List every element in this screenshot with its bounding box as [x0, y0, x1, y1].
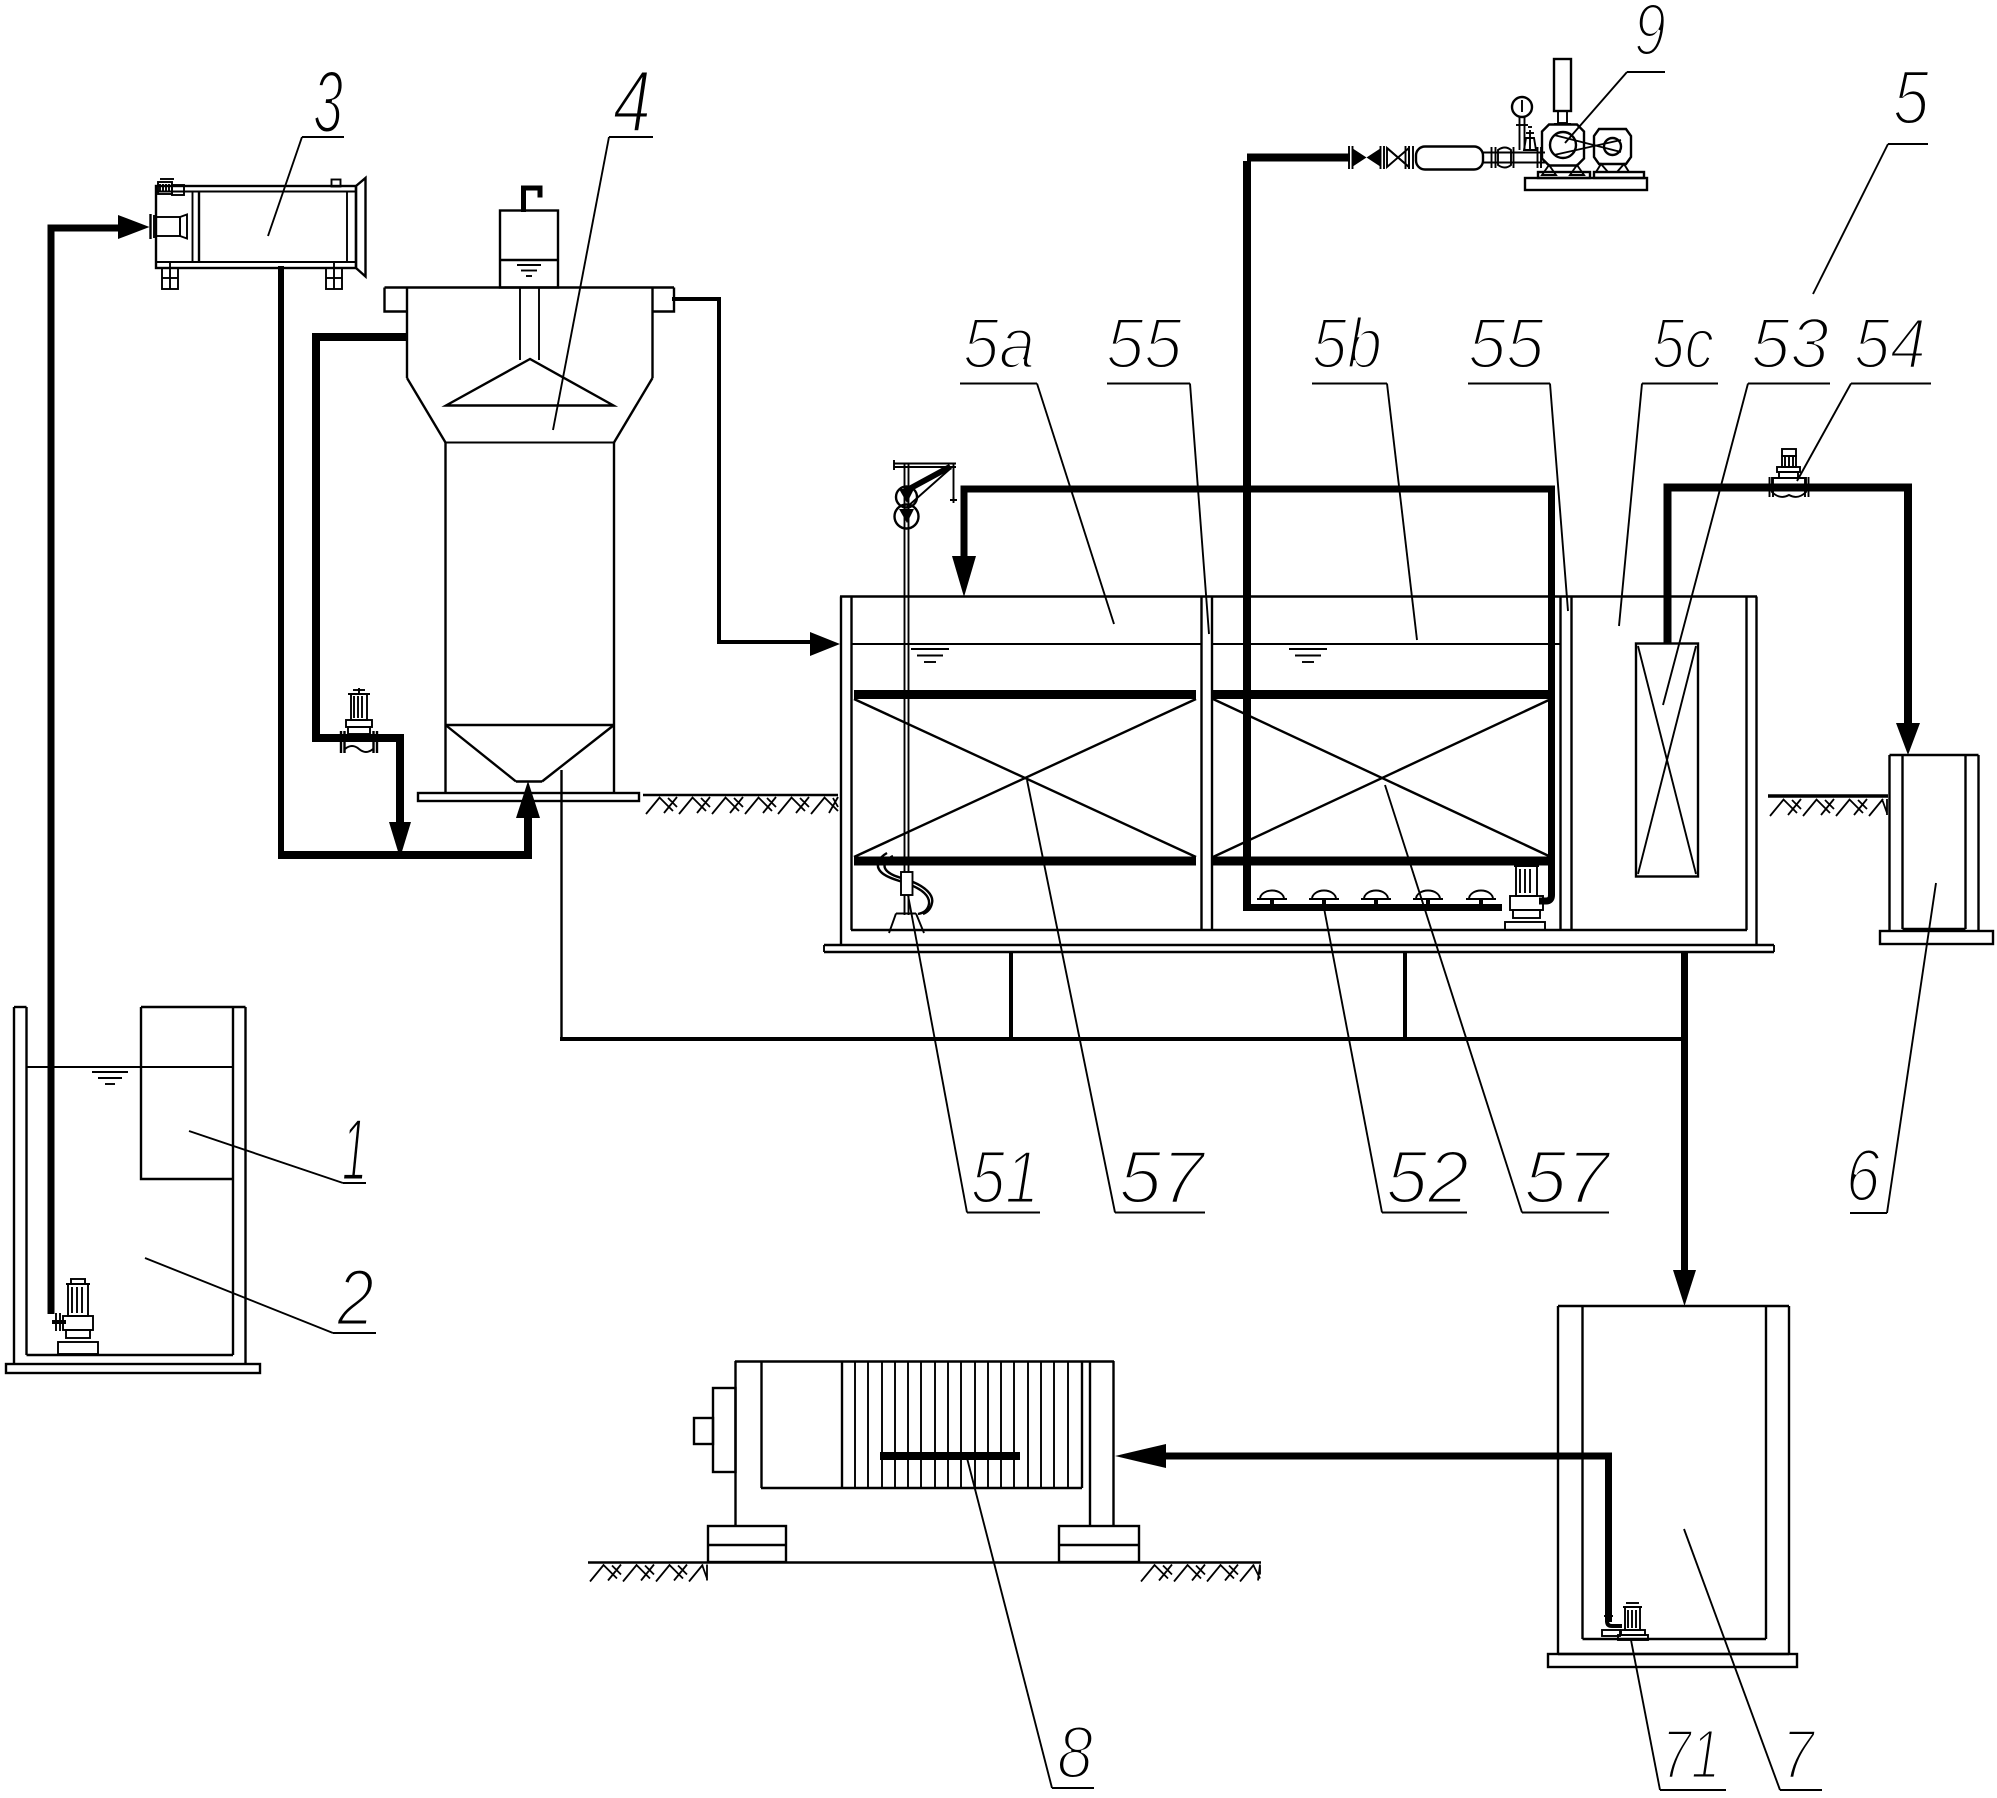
svg-text:5: 5 [1893, 55, 1930, 141]
svg-text:8: 8 [1057, 1711, 1093, 1794]
svg-text:55: 55 [1106, 305, 1182, 384]
svg-text:55: 55 [1468, 305, 1544, 384]
svg-text:5b: 5b [1312, 305, 1382, 384]
svg-text:51: 51 [971, 1135, 1039, 1219]
svg-text:4: 4 [613, 52, 651, 151]
svg-text:5a: 5a [963, 305, 1035, 384]
svg-text:7: 7 [1782, 1715, 1817, 1793]
svg-text:57: 57 [1119, 1135, 1207, 1219]
svg-text:52: 52 [1386, 1135, 1469, 1219]
svg-text:3: 3 [313, 52, 343, 151]
svg-text:71: 71 [1662, 1715, 1720, 1793]
svg-text:1: 1 [342, 1100, 367, 1199]
svg-text:6: 6 [1846, 1134, 1881, 1217]
svg-text:57: 57 [1524, 1135, 1612, 1219]
svg-text:53: 53 [1751, 305, 1829, 384]
svg-text:2: 2 [336, 1253, 374, 1342]
svg-text:5c: 5c [1652, 305, 1714, 384]
svg-text:54: 54 [1854, 305, 1926, 384]
svg-text:9: 9 [1634, 0, 1666, 71]
